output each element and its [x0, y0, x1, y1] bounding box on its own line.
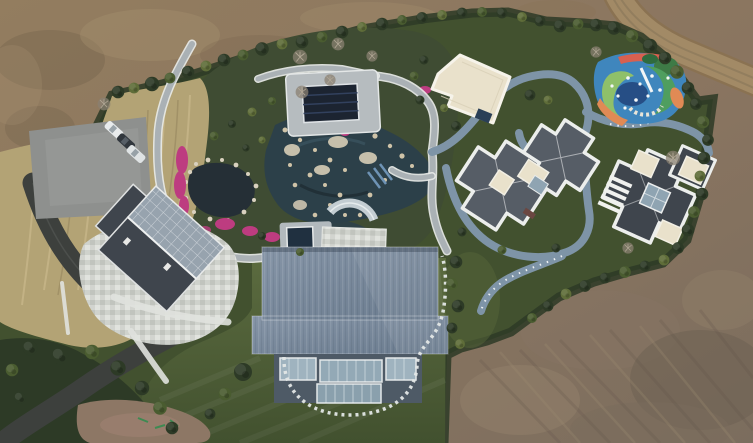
playground: [594, 53, 687, 126]
ridge-shadow: [262, 247, 438, 252]
blue-court: [616, 82, 648, 106]
aerial-photo: [0, 0, 753, 443]
aerial-photo-canvas: [0, 0, 753, 443]
